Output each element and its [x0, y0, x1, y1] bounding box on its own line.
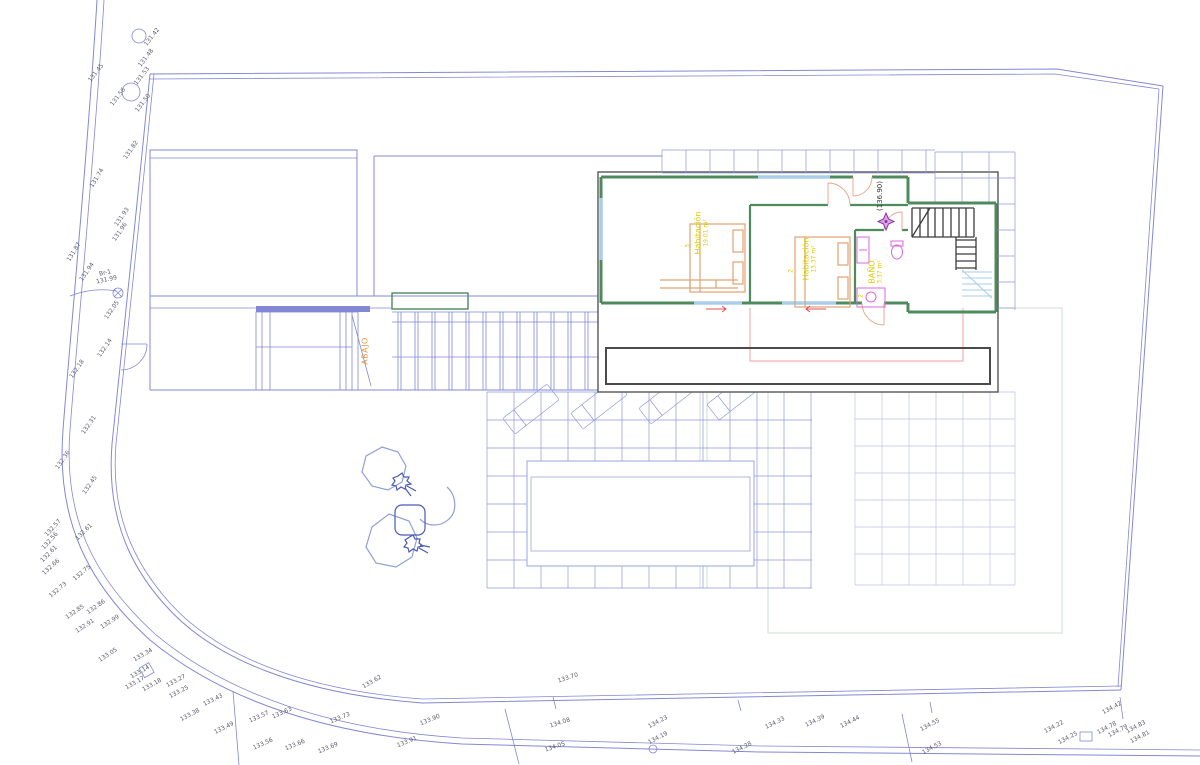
- roof-tile-row: [662, 150, 935, 173]
- room-area: 19.01 m²: [703, 212, 710, 255]
- site-plan-canvas: Habitación 19.01 m² 3 Habitación 13.37 m…: [0, 0, 1200, 765]
- stair-ramp-down: [256, 312, 371, 390]
- garden-trees: [362, 447, 455, 567]
- planter-box: [392, 293, 468, 309]
- site-plan-drawing: [0, 0, 1200, 765]
- room-area: 3.37 m²: [877, 260, 884, 284]
- room-label-bathroom: BAÑO 3.37 m²: [868, 260, 883, 284]
- level-elevation-label: (136.90): [877, 181, 885, 211]
- room-number-bedroom-1: 3: [685, 244, 692, 248]
- benchmark-marker: [113, 288, 123, 298]
- room-number-bedroom-2: 2: [788, 269, 795, 273]
- stair-down-label: ABAJO: [362, 337, 371, 365]
- building-lower-level: [121, 150, 662, 390]
- terrace-tile-grid-east: [855, 392, 1015, 585]
- pergola-slats: [392, 312, 600, 390]
- room-area: 13.37 m²: [811, 238, 818, 281]
- room-label-bedroom-2: Habitación 13.37 m²: [802, 238, 817, 281]
- room-number-bathroom: 2: [858, 294, 865, 298]
- room-label-bedroom-1: Habitación 19.01 m²: [694, 212, 709, 255]
- pool-terrace: [487, 370, 1015, 588]
